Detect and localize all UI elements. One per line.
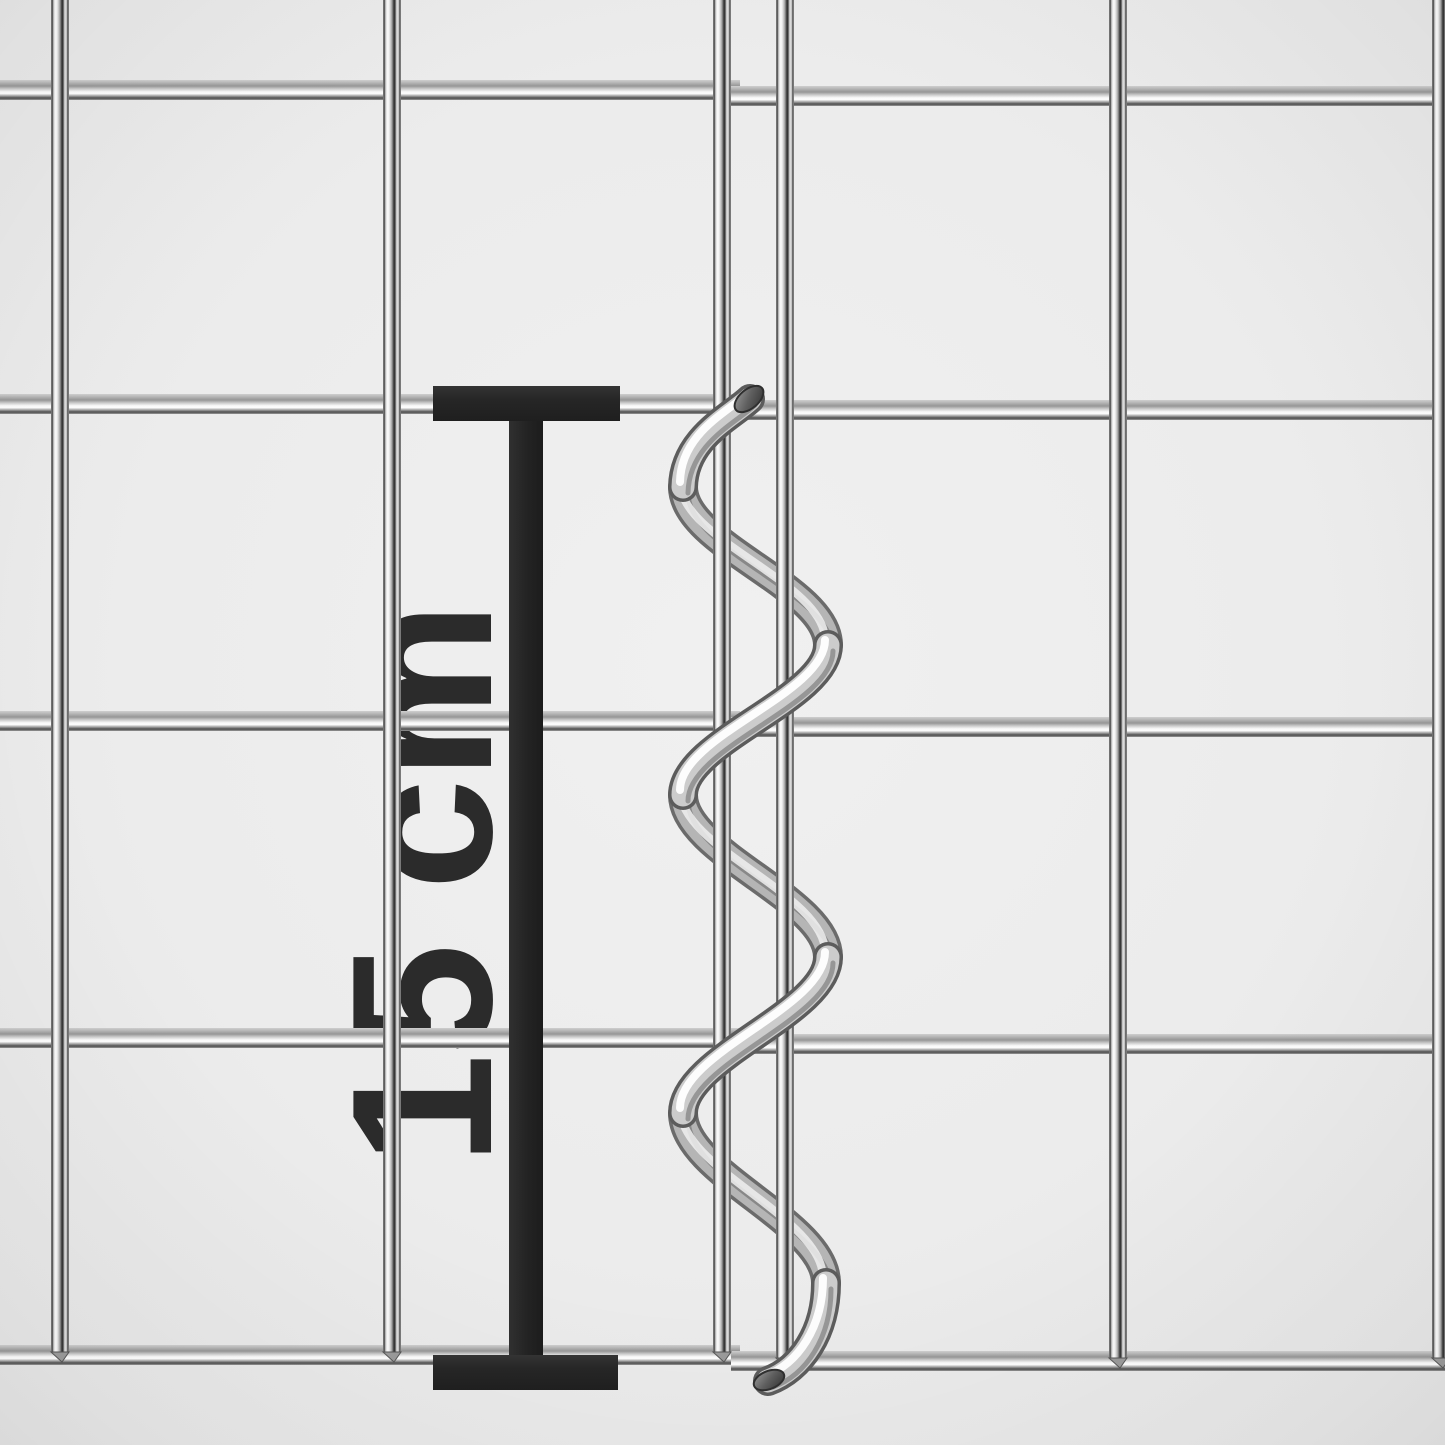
mesh-horizontal-wire — [731, 1351, 1445, 1371]
dimension-marker-bottom-bar — [433, 1355, 618, 1390]
mesh-horizontal-wire — [731, 86, 1445, 106]
product-render-scene: 15 cm — [0, 0, 1445, 1445]
wire-mesh-and-spiral-render — [0, 0, 1445, 1445]
spiral-connector-back-strands — [680, 482, 833, 1289]
dimension-marker-top-bar — [433, 386, 620, 421]
mesh-vertical-wire — [383, 0, 401, 1352]
mesh-horizontal-wire — [731, 400, 1445, 420]
mesh-horizontal-wire — [0, 1345, 740, 1365]
mesh-horizontal-wire — [0, 711, 740, 731]
mesh-vertical-wire — [1432, 0, 1445, 1358]
mesh-horizontal-wire — [731, 717, 1445, 737]
mesh-horizontal-wire — [731, 1034, 1445, 1054]
mesh-vertical-wire — [1109, 0, 1127, 1358]
spiral-strand — [680, 482, 833, 651]
mesh-vertical-wire — [713, 0, 731, 1352]
mesh-horizontal-wire — [0, 1028, 740, 1048]
dimension-marker-stem — [509, 388, 543, 1390]
spiral-strand — [680, 790, 833, 963]
mesh-vertical-wires — [51, 0, 1445, 1368]
mesh-horizontal-wire — [0, 394, 740, 414]
mesh-vertical-wire — [51, 0, 69, 1352]
spiral-strand — [680, 1108, 831, 1289]
mesh-horizontal-wire — [0, 80, 740, 100]
